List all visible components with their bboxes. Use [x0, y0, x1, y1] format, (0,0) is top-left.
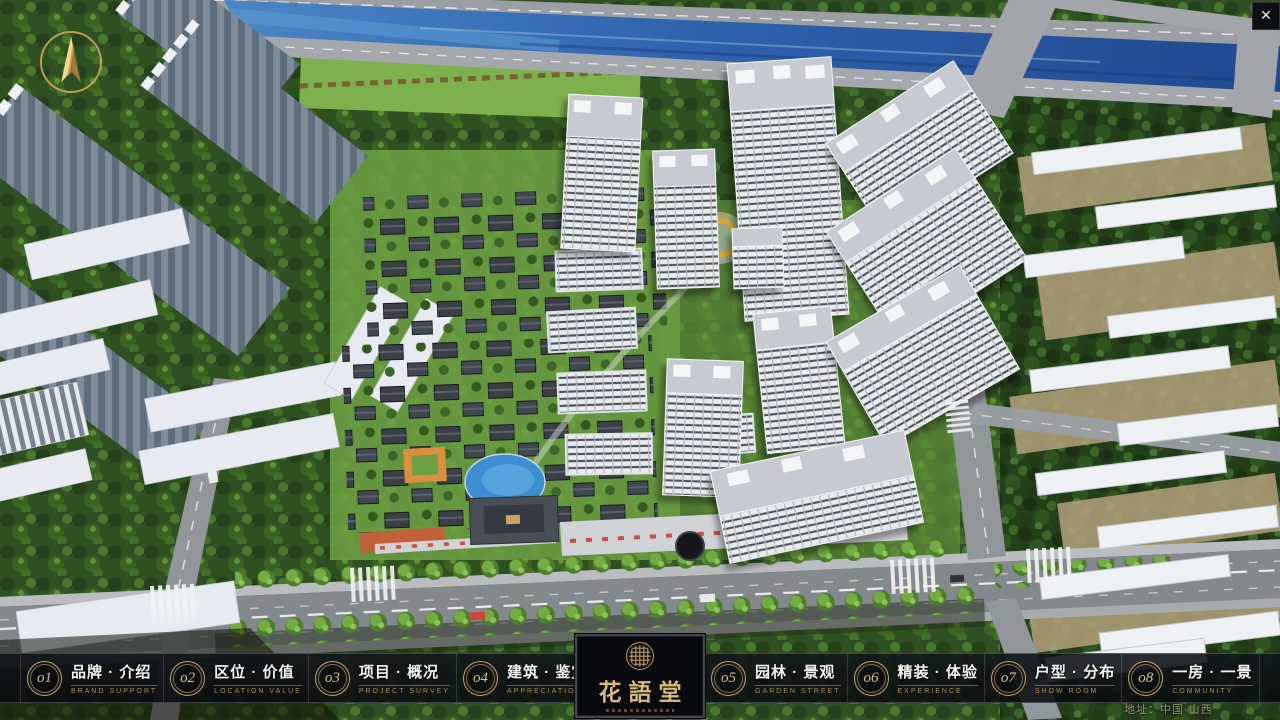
- menu-number: o3: [325, 670, 340, 687]
- menu-title: 项目 · 概况: [359, 661, 450, 682]
- menu-number: o8: [1138, 670, 1153, 687]
- menu-number-badge: o2: [170, 661, 205, 696]
- menu-number: o2: [180, 670, 195, 687]
- menu-number-badge: o1: [27, 661, 62, 696]
- menu-number: o1: [37, 670, 52, 687]
- menu-number-badge: o4: [463, 661, 498, 696]
- project-address: 地址：中国·山西: [1124, 701, 1213, 717]
- menu-number: o5: [721, 670, 736, 687]
- menu-subtitle: GARDEN STREET: [755, 685, 841, 695]
- menu-title: 一房 · 一景: [1172, 661, 1252, 682]
- menu-subtitle: COMMUNITY: [1172, 685, 1252, 695]
- menu-number-badge: o5: [711, 661, 746, 696]
- menu-number-badge: o7: [991, 661, 1026, 696]
- sales-presentation-app: ✕ o1 品牌 · 介绍 BRAND SUPPORT o2 区位 · 价值 LO…: [0, 0, 1280, 720]
- close-icon[interactable]: ✕: [1252, 2, 1280, 30]
- project-logo-title: 花語堂: [592, 673, 689, 707]
- menu-number-badge: o6: [854, 661, 889, 696]
- compass-north-arrow-icon: [58, 36, 84, 82]
- menu-item-architecture[interactable]: o4 建筑 · 鉴赏 APPRECIATION: [456, 654, 593, 702]
- menu-number: o6: [864, 670, 879, 687]
- menu-item-location-value[interactable]: o2 区位 · 价值 LOCATION VALUE: [163, 654, 308, 702]
- menu-number: o7: [1001, 670, 1016, 687]
- menu-subtitle: SHOW ROOM: [1035, 685, 1115, 695]
- menu-title: 区位 · 价值: [214, 661, 302, 682]
- menu-subtitle: LOCATION VALUE: [214, 685, 302, 695]
- menu-subtitle: BRAND SUPPORT: [71, 685, 157, 695]
- aerial-map[interactable]: [0, 0, 1280, 720]
- menu-number: o4: [473, 670, 488, 687]
- project-logo-plaque[interactable]: 花語堂: [575, 634, 705, 718]
- menu-number-badge: o8: [1128, 661, 1163, 696]
- menu-title: 精装 · 体验: [898, 661, 978, 682]
- bottom-menu-bar-left: o1 品牌 · 介绍 BRAND SUPPORT o2 区位 · 价值 LOCA…: [0, 653, 575, 703]
- menu-subtitle: PROJECT SURVEY: [359, 685, 450, 695]
- menu-item-project-survey[interactable]: o3 项目 · 概况 PROJECT SURVEY: [308, 654, 456, 702]
- menu-item-brand-intro[interactable]: o1 品牌 · 介绍 BRAND SUPPORT: [20, 654, 163, 702]
- menu-title: 户型 · 分布: [1035, 661, 1115, 682]
- menu-item-garden-landscape[interactable]: o5 园林 · 景观 GARDEN STREET: [705, 654, 847, 702]
- logo-tagline-divider: [606, 709, 674, 712]
- gold-seal-icon: [626, 642, 654, 670]
- menu-item-room-view[interactable]: o8 一房 · 一景 COMMUNITY: [1121, 654, 1259, 702]
- menu-number-badge: o3: [315, 661, 350, 696]
- menu-item-interior-experience[interactable]: o6 精装 · 体验 EXPERIENCE: [847, 654, 984, 702]
- bottom-menu-bar-right: o5 园林 · 景观 GARDEN STREET o6 精装 · 体验 EXPE…: [705, 653, 1280, 703]
- menu-title: 园林 · 景观: [755, 661, 841, 682]
- menu-subtitle: EXPERIENCE: [898, 685, 978, 695]
- compass-icon: [40, 31, 102, 93]
- menu-item-floorplan-distribution[interactable]: o7 户型 · 分布 SHOW ROOM: [984, 654, 1121, 702]
- menu-title: 品牌 · 介绍: [71, 661, 157, 682]
